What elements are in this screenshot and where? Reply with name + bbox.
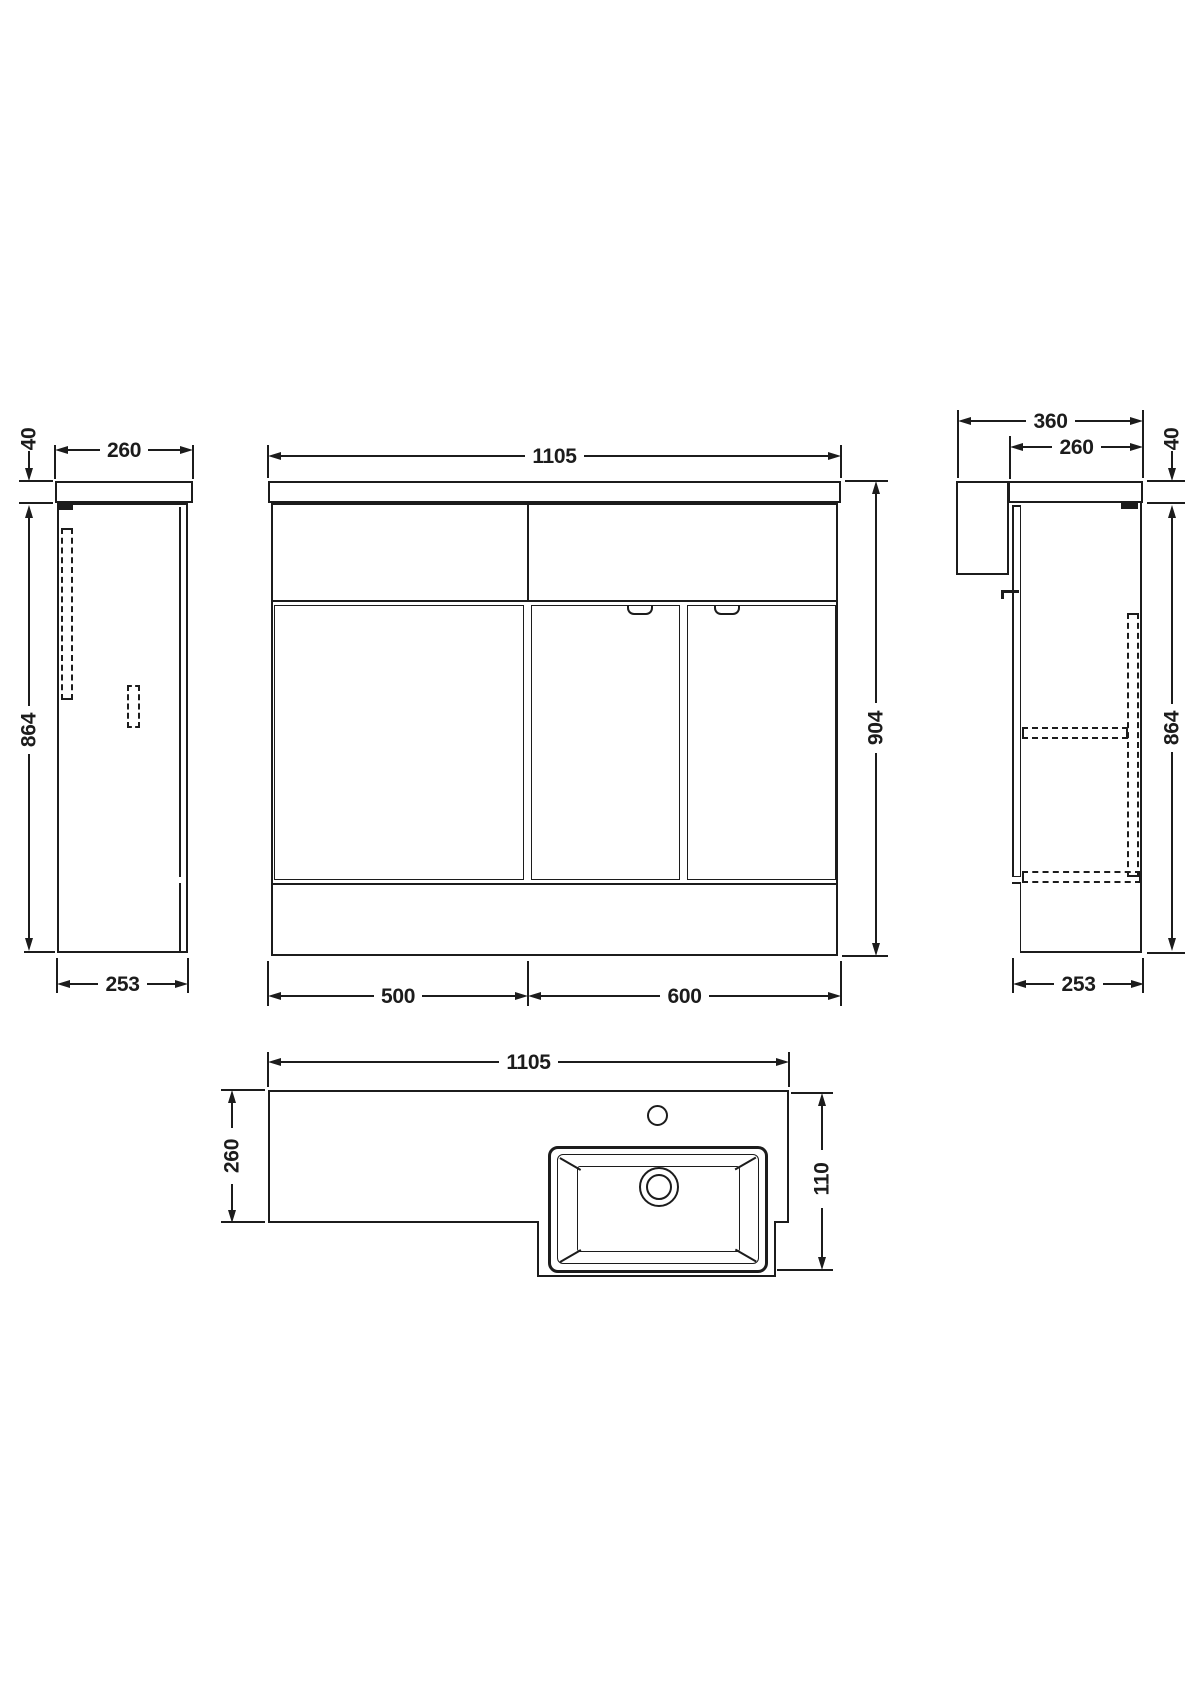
drawer-divider-line [272,600,837,602]
door-panel-left [274,605,524,880]
dimension-line [28,451,30,468]
arrow-left-icon [528,992,541,1000]
extension-line [1147,952,1185,954]
dimension-line [1171,451,1173,468]
arrow-down-icon [25,938,33,951]
dim-front-width-right-unit: 600 [528,985,841,1007]
door-top-tick [1012,505,1021,507]
dimension-line [231,1184,233,1211]
dim-right-cabinet-height: 864 [1161,704,1183,752]
door-panel-right [687,605,836,880]
technical-drawing: 260 40 864 253 [0,0,1200,1698]
arrow-right-icon [1130,417,1143,425]
hidden-wall-bracket-dashed [61,528,73,700]
arrow-left-icon [55,446,68,454]
arrow-left-icon [268,1058,281,1066]
extension-line [845,480,888,482]
extension-line [1147,480,1185,482]
extension-line [791,1092,833,1094]
arrow-left-icon [1013,980,1026,988]
dim-plan-width-total: 1105 [268,1051,789,1073]
extension-line [842,955,888,957]
hidden-base-panel-dashed [1022,871,1141,883]
door-edge-line [179,507,181,877]
worktop-fixing-bracket [1121,503,1138,509]
plinth-front-line [1020,883,1022,953]
arrow-left-icon [57,980,70,988]
dim-right-depth-total: 360 [958,410,1143,432]
cabinet-side-outline [57,503,188,953]
door-handle-recess [627,606,653,615]
hidden-shelf-dashed [1022,727,1128,739]
hidden-fixing-dashed [127,685,140,728]
arrow-left-icon [1010,443,1023,451]
worktop-front-profile [268,481,841,503]
dimension-line [1171,518,1173,704]
arrow-down-icon [228,1210,236,1223]
door-handle-recess [714,606,740,615]
extension-line [19,502,53,504]
arrow-right-icon [180,446,193,454]
arrow-right-icon [776,1058,789,1066]
hidden-back-panel-dashed [1127,613,1139,877]
dim-left-worktop-thickness: 40 [18,427,40,451]
dim-label: 360 [1026,411,1074,432]
arrow-left-icon [268,452,281,460]
dim-label: 253 [98,974,146,995]
dim-right-depth-base: 253 [1013,973,1144,995]
arrow-right-icon [175,980,188,988]
dim-label: 1105 [499,1052,557,1073]
worktop-side-profile [55,481,193,503]
dim-right-worktop-thickness: 40 [1161,427,1183,451]
dimension-line [821,1208,823,1257]
dim-right-depth-worktop: 260 [1010,436,1143,458]
dim-left-cabinet-height: 864 [18,706,40,754]
door-edge-line [1020,505,1022,877]
cabinet-back-line [1140,503,1142,953]
arrow-right-icon [828,452,841,460]
dim-label: 600 [660,986,708,1007]
dim-label: 260 [1052,437,1100,458]
plinth-line [272,883,837,885]
dim-label: 1105 [525,446,583,467]
arrow-down-icon [818,1257,826,1270]
arrow-up-icon [1168,505,1176,518]
arrow-left-icon [958,417,971,425]
arrow-right-icon [1131,980,1144,988]
dim-plan-basin-projection: 110 [811,1150,833,1208]
door-panel-middle [531,605,680,880]
dim-label: 253 [1054,974,1102,995]
worktop-fixing-bracket [58,504,73,510]
dimension-line [875,753,877,943]
ground-line [24,951,55,953]
dim-left-depth-base: 253 [57,973,188,995]
arrow-right-icon [828,992,841,1000]
basin-overhang-profile [956,481,1009,575]
waste-drain-inner [646,1174,672,1200]
cabinet-bottom-line [1021,951,1142,953]
dim-front-width-total: 1105 [268,445,841,467]
arrow-up-icon [818,1093,826,1106]
dimension-line [28,518,30,706]
dim-front-height-total: 904 [865,703,887,753]
extension-line [1147,502,1185,504]
dimension-line [875,494,877,703]
plinth-step-tick [1012,882,1021,884]
tap-hole [647,1105,668,1126]
extension-line [19,480,53,482]
arrow-down-icon [872,943,880,956]
dimension-line [1171,752,1173,938]
arrow-up-icon [25,505,33,518]
door-edge-line [179,883,181,951]
arrow-right-icon [1130,443,1143,451]
hinge-clip-detail [1001,590,1004,599]
worktop-side-profile [1008,481,1143,503]
hinge-clip-detail [1001,590,1019,593]
dim-left-depth-top: 260 [55,439,193,461]
arrow-right-icon [515,992,528,1000]
dim-label: 260 [100,440,148,461]
dim-label: 500 [374,986,422,1007]
arrow-left-icon [268,992,281,1000]
unit-split-line [527,505,529,601]
dim-front-width-left-unit: 500 [268,985,528,1007]
arrow-up-icon [228,1090,236,1103]
arrow-up-icon [872,481,880,494]
dimension-line [28,754,30,938]
door-bottom-tick [1012,876,1021,878]
dim-plan-depth-worktop: 260 [221,1128,243,1184]
dimension-line [231,1103,233,1128]
dimension-line [821,1106,823,1150]
arrow-down-icon [1168,938,1176,951]
door-edge-line [1012,505,1014,877]
